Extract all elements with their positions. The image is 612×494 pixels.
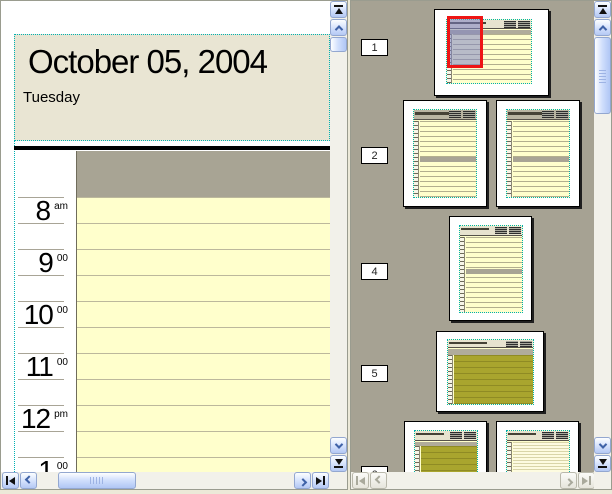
mini-month-calendar-icon — [463, 111, 475, 118]
day-header: October 05, 2004 Tuesday — [14, 34, 330, 141]
thumbnail-horizontal-scrollbar[interactable] — [351, 472, 596, 489]
half-hour-line — [18, 431, 64, 432]
scroll-to-top-button[interactable] — [330, 1, 347, 18]
scroll-left-button[interactable] — [370, 472, 387, 489]
first-page-button[interactable] — [2, 472, 19, 489]
thumbnail-vertical-scrollbar[interactable] — [594, 1, 611, 472]
hour-label: 8 am — [15, 198, 68, 223]
scrollbar-corner — [594, 472, 611, 489]
scroll-bottom-icon — [334, 459, 343, 468]
mini-time-gutter — [448, 355, 453, 404]
first-page-icon — [356, 476, 365, 485]
preview-horizontal-scrollbar[interactable] — [1, 472, 330, 489]
hour-number: 1 — [38, 458, 53, 472]
mini-months — [447, 111, 475, 118]
mini-day-header — [460, 226, 522, 236]
page-2-mini-preview — [413, 109, 477, 198]
chevron-down-icon — [334, 440, 342, 448]
mini-time-gutter — [507, 121, 512, 197]
scroll-up-button[interactable] — [594, 19, 611, 36]
hour-number: 10 — [24, 302, 53, 327]
time-slot-9am: 9 00 — [15, 249, 76, 301]
thumbnail-pane: 1 2 4 5 6 — [350, 0, 612, 490]
mini-filled-area — [421, 446, 477, 472]
page-7-mini-preview — [506, 430, 570, 472]
thumbnail-content: 1 2 4 5 6 — [351, 1, 594, 472]
hour-label: 12 pm — [15, 406, 68, 431]
time-slot-10am: 10 00 — [15, 301, 76, 353]
last-page-icon — [582, 476, 591, 485]
hour-label: 9 00 — [15, 250, 68, 275]
page-4-mini-preview — [459, 225, 523, 313]
mini-month-calendar-icon — [464, 432, 476, 439]
page-number-label-4: 4 — [361, 263, 388, 280]
mini-body — [460, 237, 522, 312]
mini-day-header — [448, 340, 533, 348]
first-page-icon — [6, 476, 15, 485]
mini-day-header — [507, 110, 569, 120]
appointment-area[interactable] — [77, 197, 330, 472]
scroll-up-button[interactable] — [330, 19, 347, 36]
mini-day-header — [414, 110, 476, 120]
page-thumbnail-4[interactable] — [449, 216, 532, 321]
mini-body — [448, 355, 533, 404]
mini-month-calendar-icon — [556, 432, 568, 439]
half-hour-line — [18, 275, 64, 276]
mini-months — [540, 432, 568, 439]
hour-suffix: 00 — [57, 357, 68, 368]
mini-divider-band — [420, 157, 476, 162]
mini-time-gutter — [507, 442, 512, 472]
hour-label: 10 00 — [15, 302, 68, 327]
mini-month-calendar-icon — [449, 111, 461, 118]
mini-month-calendar-icon — [506, 341, 518, 347]
hour-label: 1 00 — [15, 458, 68, 472]
mini-body — [414, 121, 476, 197]
page-thumbnail-1[interactable] — [434, 9, 549, 96]
page-5-mini-preview — [447, 339, 534, 405]
last-page-button[interactable] — [578, 472, 595, 489]
page-3-mini-preview — [506, 109, 570, 198]
page-number-label-5: 5 — [361, 365, 388, 382]
mini-time-gutter — [414, 121, 419, 197]
hour-number: 11 — [26, 354, 53, 379]
half-hour-line — [18, 223, 64, 224]
thumb-grip — [599, 69, 606, 83]
mini-body — [507, 442, 569, 472]
scroll-left-button[interactable] — [20, 472, 37, 489]
scroll-to-bottom-button[interactable] — [594, 455, 611, 472]
page-number-label-1: 1 — [361, 39, 388, 56]
day-name: Tuesday — [23, 89, 329, 106]
time-gutter: 8 am 9 00 10 00 — [15, 197, 76, 472]
scrollbar-corner — [330, 472, 347, 489]
hour-suffix: 00 — [57, 461, 68, 472]
mini-day-header — [415, 431, 477, 441]
preview-vertical-scrollbar[interactable] — [330, 1, 347, 472]
time-slot-12pm: 12 pm — [15, 405, 76, 457]
page-thumbnail-6[interactable] — [404, 421, 487, 472]
mini-month-calendar-icon — [504, 21, 516, 28]
hour-label: 11 00 — [15, 354, 68, 379]
hour-number: 12 — [21, 406, 50, 431]
hour-suffix: 00 — [57, 305, 68, 316]
time-slot-8am: 8 am — [15, 197, 76, 249]
date-title: October 05, 2004 — [28, 43, 329, 81]
all-day-band — [77, 151, 330, 197]
half-hour-line — [18, 327, 64, 328]
chevron-right-icon — [564, 478, 572, 486]
mini-divider-band — [466, 269, 522, 274]
mini-body — [415, 446, 477, 472]
vertical-scroll-thumb[interactable] — [330, 37, 347, 52]
chevron-left-icon — [374, 475, 382, 483]
hour-number: 9 — [38, 250, 53, 275]
mini-day-header — [507, 431, 569, 441]
thumb-grip — [90, 477, 104, 484]
chevron-up-icon — [598, 25, 606, 33]
mini-ruled-area — [466, 237, 522, 312]
mini-time-gutter — [415, 446, 420, 472]
mini-months — [448, 432, 476, 439]
mini-title-text — [449, 342, 487, 344]
header-divider — [14, 146, 330, 150]
time-slot-11am: 11 00 — [15, 353, 76, 405]
first-page-button[interactable] — [352, 472, 369, 489]
mini-month-calendar-icon — [556, 111, 568, 118]
chevron-up-icon — [334, 25, 342, 33]
mini-filled-area — [454, 355, 533, 404]
hour-number: 8 — [36, 198, 51, 223]
mini-month-calendar-icon — [542, 432, 554, 439]
zoom-selection-rectangle[interactable] — [447, 16, 483, 68]
scroll-right-button[interactable] — [294, 472, 311, 489]
mini-title-text — [416, 433, 444, 435]
mini-months — [502, 21, 530, 28]
mini-month-calendar-icon — [495, 227, 507, 234]
hour-suffix: 00 — [57, 253, 68, 264]
chevron-left-icon — [24, 475, 32, 483]
last-page-icon — [316, 476, 325, 485]
page-thumbnail-2[interactable] — [403, 100, 487, 207]
hour-suffix: pm — [54, 409, 68, 420]
mini-time-gutter — [460, 237, 465, 312]
mini-month-calendar-icon — [520, 341, 532, 347]
chevron-down-icon — [598, 440, 606, 448]
mini-body — [507, 121, 569, 197]
page-thumbnail-5[interactable] — [436, 331, 544, 412]
last-page-button[interactable] — [312, 472, 329, 489]
mini-month-calendar-icon — [518, 21, 530, 28]
hour-suffix: am — [54, 201, 68, 212]
mini-months — [540, 111, 568, 118]
chevron-right-icon — [298, 478, 306, 486]
scroll-to-bottom-button[interactable] — [330, 455, 347, 472]
mini-title-text — [461, 228, 489, 230]
scroll-down-button[interactable] — [330, 437, 347, 454]
scroll-down-button[interactable] — [594, 437, 611, 454]
half-hour-line — [18, 379, 64, 380]
scroll-top-icon — [598, 5, 607, 14]
mini-month-calendar-icon — [542, 111, 554, 118]
page-thumbnail-3[interactable] — [496, 100, 580, 207]
scroll-bottom-icon — [598, 459, 607, 468]
vertical-scroll-thumb[interactable] — [594, 37, 611, 114]
scroll-top-icon — [334, 5, 343, 14]
scroll-right-button[interactable] — [560, 472, 577, 489]
page-number-label-2: 2 — [361, 147, 388, 164]
mini-title-text — [508, 433, 536, 435]
mini-month-calendar-icon — [509, 227, 521, 234]
page-thumbnail-7[interactable] — [496, 421, 579, 472]
horizontal-scroll-thumb[interactable] — [58, 472, 136, 489]
mini-fine-ruled-area — [513, 442, 569, 472]
time-slot-1pm: 1 00 — [15, 457, 76, 472]
mini-month-calendar-icon — [450, 432, 462, 439]
scroll-to-top-button[interactable] — [594, 1, 611, 18]
mini-months — [493, 227, 521, 234]
mini-divider-band — [513, 157, 569, 162]
page-6-mini-preview — [414, 430, 478, 472]
print-preview-pane: October 05, 2004 Tuesday 8 am 9 00 — [0, 0, 348, 490]
mini-months — [504, 341, 532, 347]
preview-page[interactable]: October 05, 2004 Tuesday 8 am 9 00 — [1, 1, 330, 472]
